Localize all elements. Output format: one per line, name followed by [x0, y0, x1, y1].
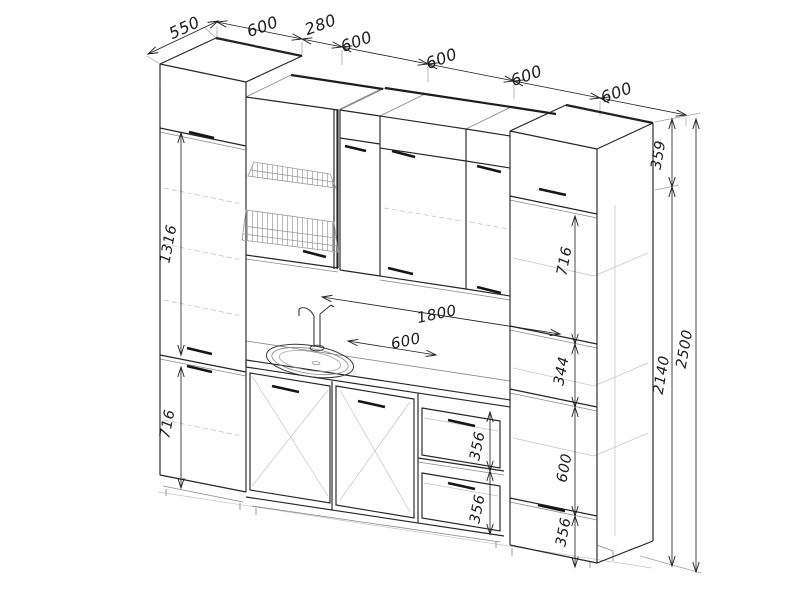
dim-label-1316: 1316 [157, 223, 180, 264]
technical-drawing-page: 550 600 280 600 600 600 600 1316 716 180… [0, 0, 800, 600]
dim-label-344: 344 [551, 355, 572, 387]
dim-label-2500: 2500 [674, 328, 697, 369]
right-tall-cabinet-outline [510, 105, 653, 563]
dim-label-600-d: 600 [598, 78, 635, 107]
dim-label-359: 359 [649, 139, 670, 171]
dim-label-280: 280 [302, 10, 339, 39]
dish-drying-rack [242, 162, 338, 252]
extension-lines [147, 26, 701, 573]
light-detail-lines [158, 205, 652, 568]
sink-drain [312, 361, 320, 365]
dim-label-356-right: 356 [553, 516, 574, 548]
dim-line-280 [302, 39, 342, 47]
faucet-icon [299, 305, 334, 351]
dim-label-716-right: 716 [554, 245, 575, 277]
kitchen-sink [264, 339, 356, 383]
dim-label-1800: 1800 [415, 301, 458, 327]
sink-outer-rim [264, 339, 356, 383]
dim-label-600-b: 600 [423, 44, 460, 73]
dim-label-2140: 2140 [651, 354, 674, 395]
dish-rack-upper-tier [248, 162, 336, 188]
dish-rack-lower-tier [242, 210, 338, 252]
dim-label-600-pantry: 600 [244, 12, 281, 41]
sink-bowl [278, 347, 342, 375]
faucet-body [299, 305, 334, 347]
dim-label-550: 550 [166, 12, 203, 43]
kitchen-drawing-canvas: 550 600 280 600 600 600 600 1316 716 180… [0, 0, 800, 600]
dim-label-600-counter: 600 [389, 329, 422, 353]
dim-label-600-oven: 600 [554, 452, 575, 484]
dim-label-356-drawer2: 356 [467, 493, 488, 525]
dim-label-600-a: 600 [338, 27, 375, 56]
dimension-labels: 550 600 280 600 600 600 600 1316 716 180… [157, 10, 696, 548]
dim-label-356-drawer1: 356 [467, 430, 488, 462]
